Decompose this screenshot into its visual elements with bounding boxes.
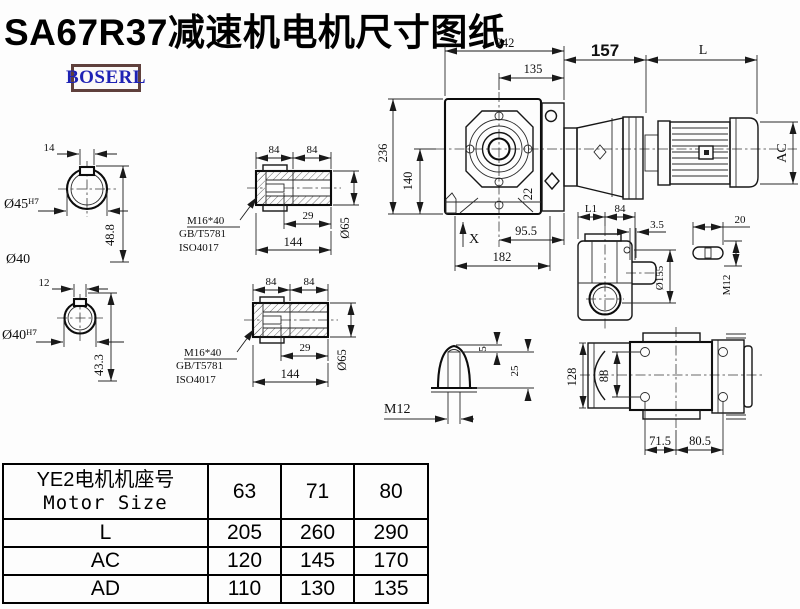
header-motor-size: YE2电机机座号 Motor Size: [3, 464, 208, 519]
dim-motor-dia: AC: [775, 143, 790, 162]
bolt-spec-line2-2: GB/T5781: [176, 360, 223, 372]
header-size-71: 71: [281, 464, 354, 519]
header-size-80: 80: [354, 464, 428, 519]
thread-m12-label: M12: [384, 402, 410, 417]
row-label-AD: AD: [3, 575, 208, 603]
hollow-shaft-view-2: 84 84 29 144 Ø65 M16*40 GB/T5781 ISO4017: [176, 276, 356, 387]
dim-thread-m12-side: M12: [721, 275, 733, 296]
dim-right-80-5: 80.5: [689, 434, 711, 448]
dim-84-side: 84: [615, 203, 627, 215]
row-label-AC: AC: [3, 547, 208, 575]
cell-AC-71: 145: [281, 547, 354, 575]
dim-center-to-face: 135: [524, 62, 543, 76]
dim-left-71-5: 71.5: [649, 434, 671, 448]
dim-base2: 182: [493, 250, 512, 264]
header-cn: YE2电机机座号: [4, 468, 207, 492]
dim-l1: L1: [585, 203, 597, 215]
dim-shaft-dia-1: Ø65: [338, 217, 352, 239]
dim-seg2-1: 84: [307, 144, 319, 156]
dim-total-len-2: 144: [281, 367, 301, 381]
header-size-63: 63: [208, 464, 281, 519]
table-row-L: L 205 260 290: [3, 519, 428, 547]
dim-keyway-width-1: 14: [44, 142, 56, 154]
dim-adapter-length: 157: [591, 41, 619, 60]
cell-AD-63: 110: [208, 575, 281, 603]
cell-AC-80: 170: [354, 547, 428, 575]
dim-plate-3-5: 3.5: [650, 219, 664, 231]
dim-offset-22: 22: [521, 188, 535, 201]
bolt-spec-line3-1: ISO4017: [179, 242, 219, 254]
row-label-L: L: [3, 519, 208, 547]
dim-base1: 95.5: [515, 224, 537, 238]
keyed-bore-view-2: 12 Ø40ᴴ⁷ 43.3: [2, 277, 124, 381]
bottom-view: 128 88 71.5 80.5: [565, 327, 762, 455]
cell-L-71: 260: [281, 519, 354, 547]
cell-AD-80: 135: [354, 575, 428, 603]
dim-seg1-1: 84: [269, 144, 281, 156]
drawing-sheet: SA67R37减速机电机尺寸图纸 BOSERL 14: [0, 0, 800, 609]
header-en: Motor Size: [4, 492, 207, 515]
dim-bolt-span: 88: [597, 370, 611, 383]
dim-overall-height: 236: [376, 144, 390, 163]
dim-tip-5: 5: [477, 346, 489, 352]
bolt-spec-line3-2: ISO4017: [176, 374, 216, 386]
side-view: L1 84 3.5 Ø155 20 M12: [578, 203, 750, 330]
bolt-spec-line1-1: M16*40: [187, 215, 225, 227]
key-detail-view: 5 25 M12: [384, 336, 534, 424]
dim-key-len-2: 29: [300, 342, 312, 354]
dim-slot-20: 20: [735, 214, 747, 226]
label-outer-dia: Ø40: [6, 252, 30, 267]
cell-L-63: 205: [208, 519, 281, 547]
dim-seg1-2: 84: [266, 276, 278, 288]
dim-overall-width: 242: [496, 36, 515, 50]
dim-key-len-1: 29: [303, 210, 315, 222]
dim-key-depth-2: 43.3: [92, 354, 106, 376]
dim-depth-25: 25: [509, 365, 521, 377]
keyed-bore-view-1: 14 Ø45ᴴ⁷ 48.8 Ø40: [4, 142, 129, 267]
hollow-shaft-view-1: 84 84 29 144 Ø65 M16*40 GB/T5781 ISO4017: [179, 144, 359, 255]
cell-AD-71: 130: [281, 575, 354, 603]
dim-total-len-1: 144: [284, 235, 304, 249]
dim-bore-1: Ø45ᴴ⁷: [4, 197, 39, 212]
motor-size-table: YE2电机机座号 Motor Size 63 71 80 L 205 260 2…: [2, 463, 429, 604]
table-row-AC: AC 120 145 170: [3, 547, 428, 575]
dim-motor-length: L: [699, 43, 708, 58]
dim-seg2-2: 84: [304, 276, 316, 288]
dim-shaft-dia-2: Ø65: [335, 349, 349, 371]
front-view: 242 135 157 L 236 140 22 95.5 X: [376, 36, 798, 271]
table-header-row: YE2电机机座号 Motor Size 63 71 80: [3, 464, 428, 519]
dim-keyway-width-2: 12: [39, 277, 50, 289]
dim-axis-height: 140: [401, 172, 415, 191]
dim-key-depth-1: 48.8: [103, 224, 117, 246]
datum-x-label: X: [469, 232, 479, 247]
cell-L-80: 290: [354, 519, 428, 547]
bolt-spec-line1-2: M16*40: [184, 347, 222, 359]
dim-bottom-height: 128: [565, 368, 579, 387]
bolt-spec-line2-1: GB/T5781: [179, 228, 226, 240]
table-row-AD: AD 110 130 135: [3, 575, 428, 603]
dim-bore-2: Ø40ᴴ⁷: [2, 328, 37, 343]
cell-AC-63: 120: [208, 547, 281, 575]
dim-flange-dia: Ø155: [654, 265, 666, 290]
